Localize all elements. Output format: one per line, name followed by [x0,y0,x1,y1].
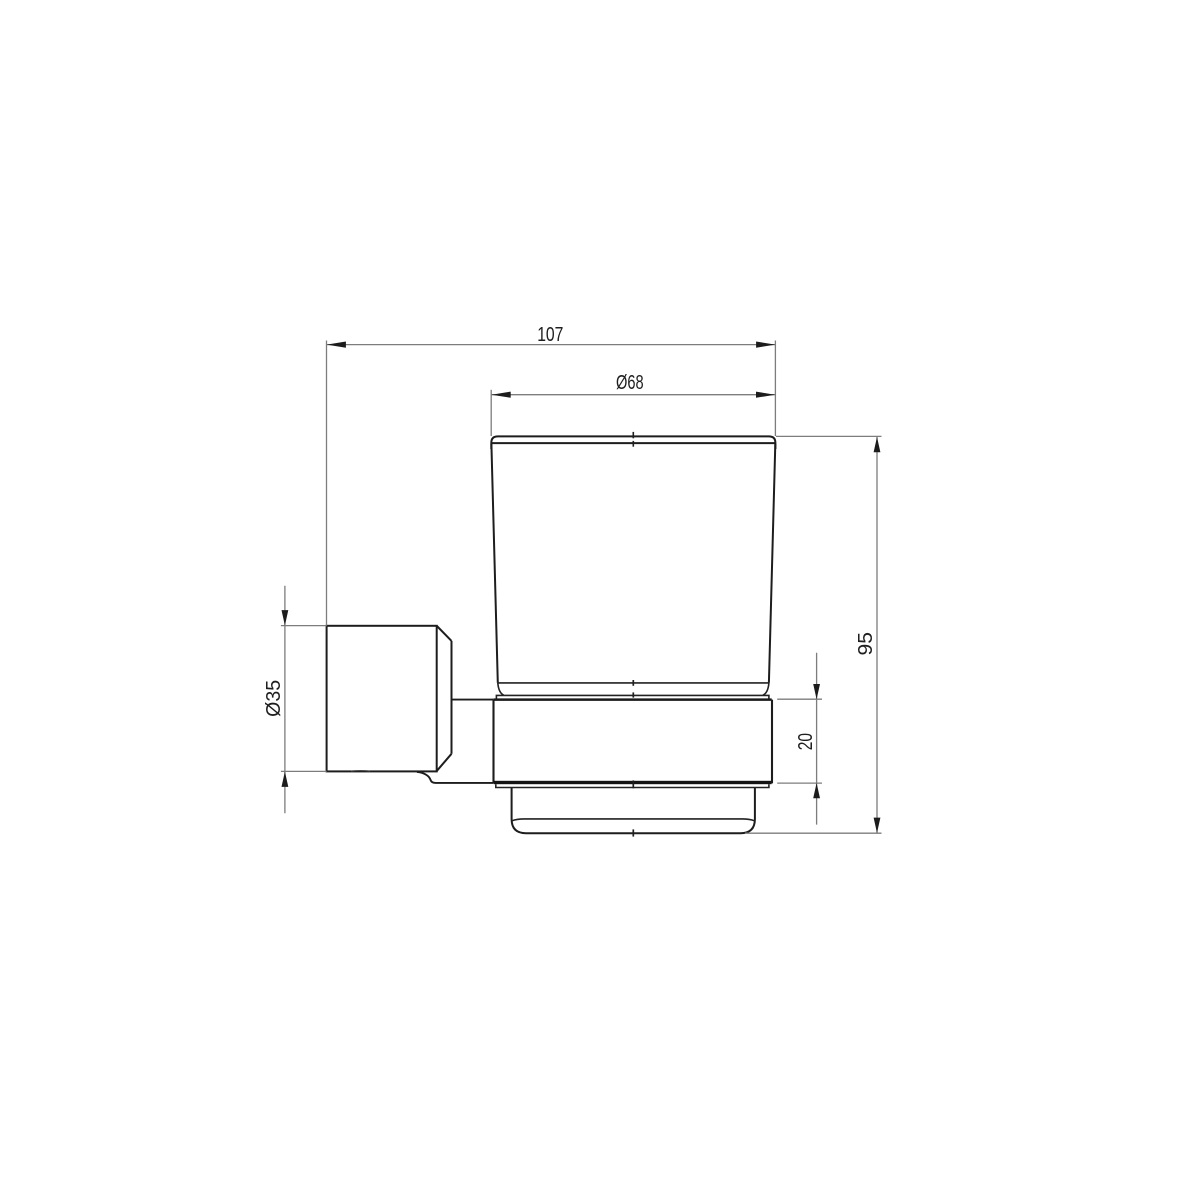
svg-text:Ø68: Ø68 [616,372,644,394]
svg-text:20: 20 [795,733,817,750]
svg-text:Ø35: Ø35 [263,680,285,717]
svg-text:95: 95 [855,632,877,655]
svg-text:107: 107 [537,324,563,346]
